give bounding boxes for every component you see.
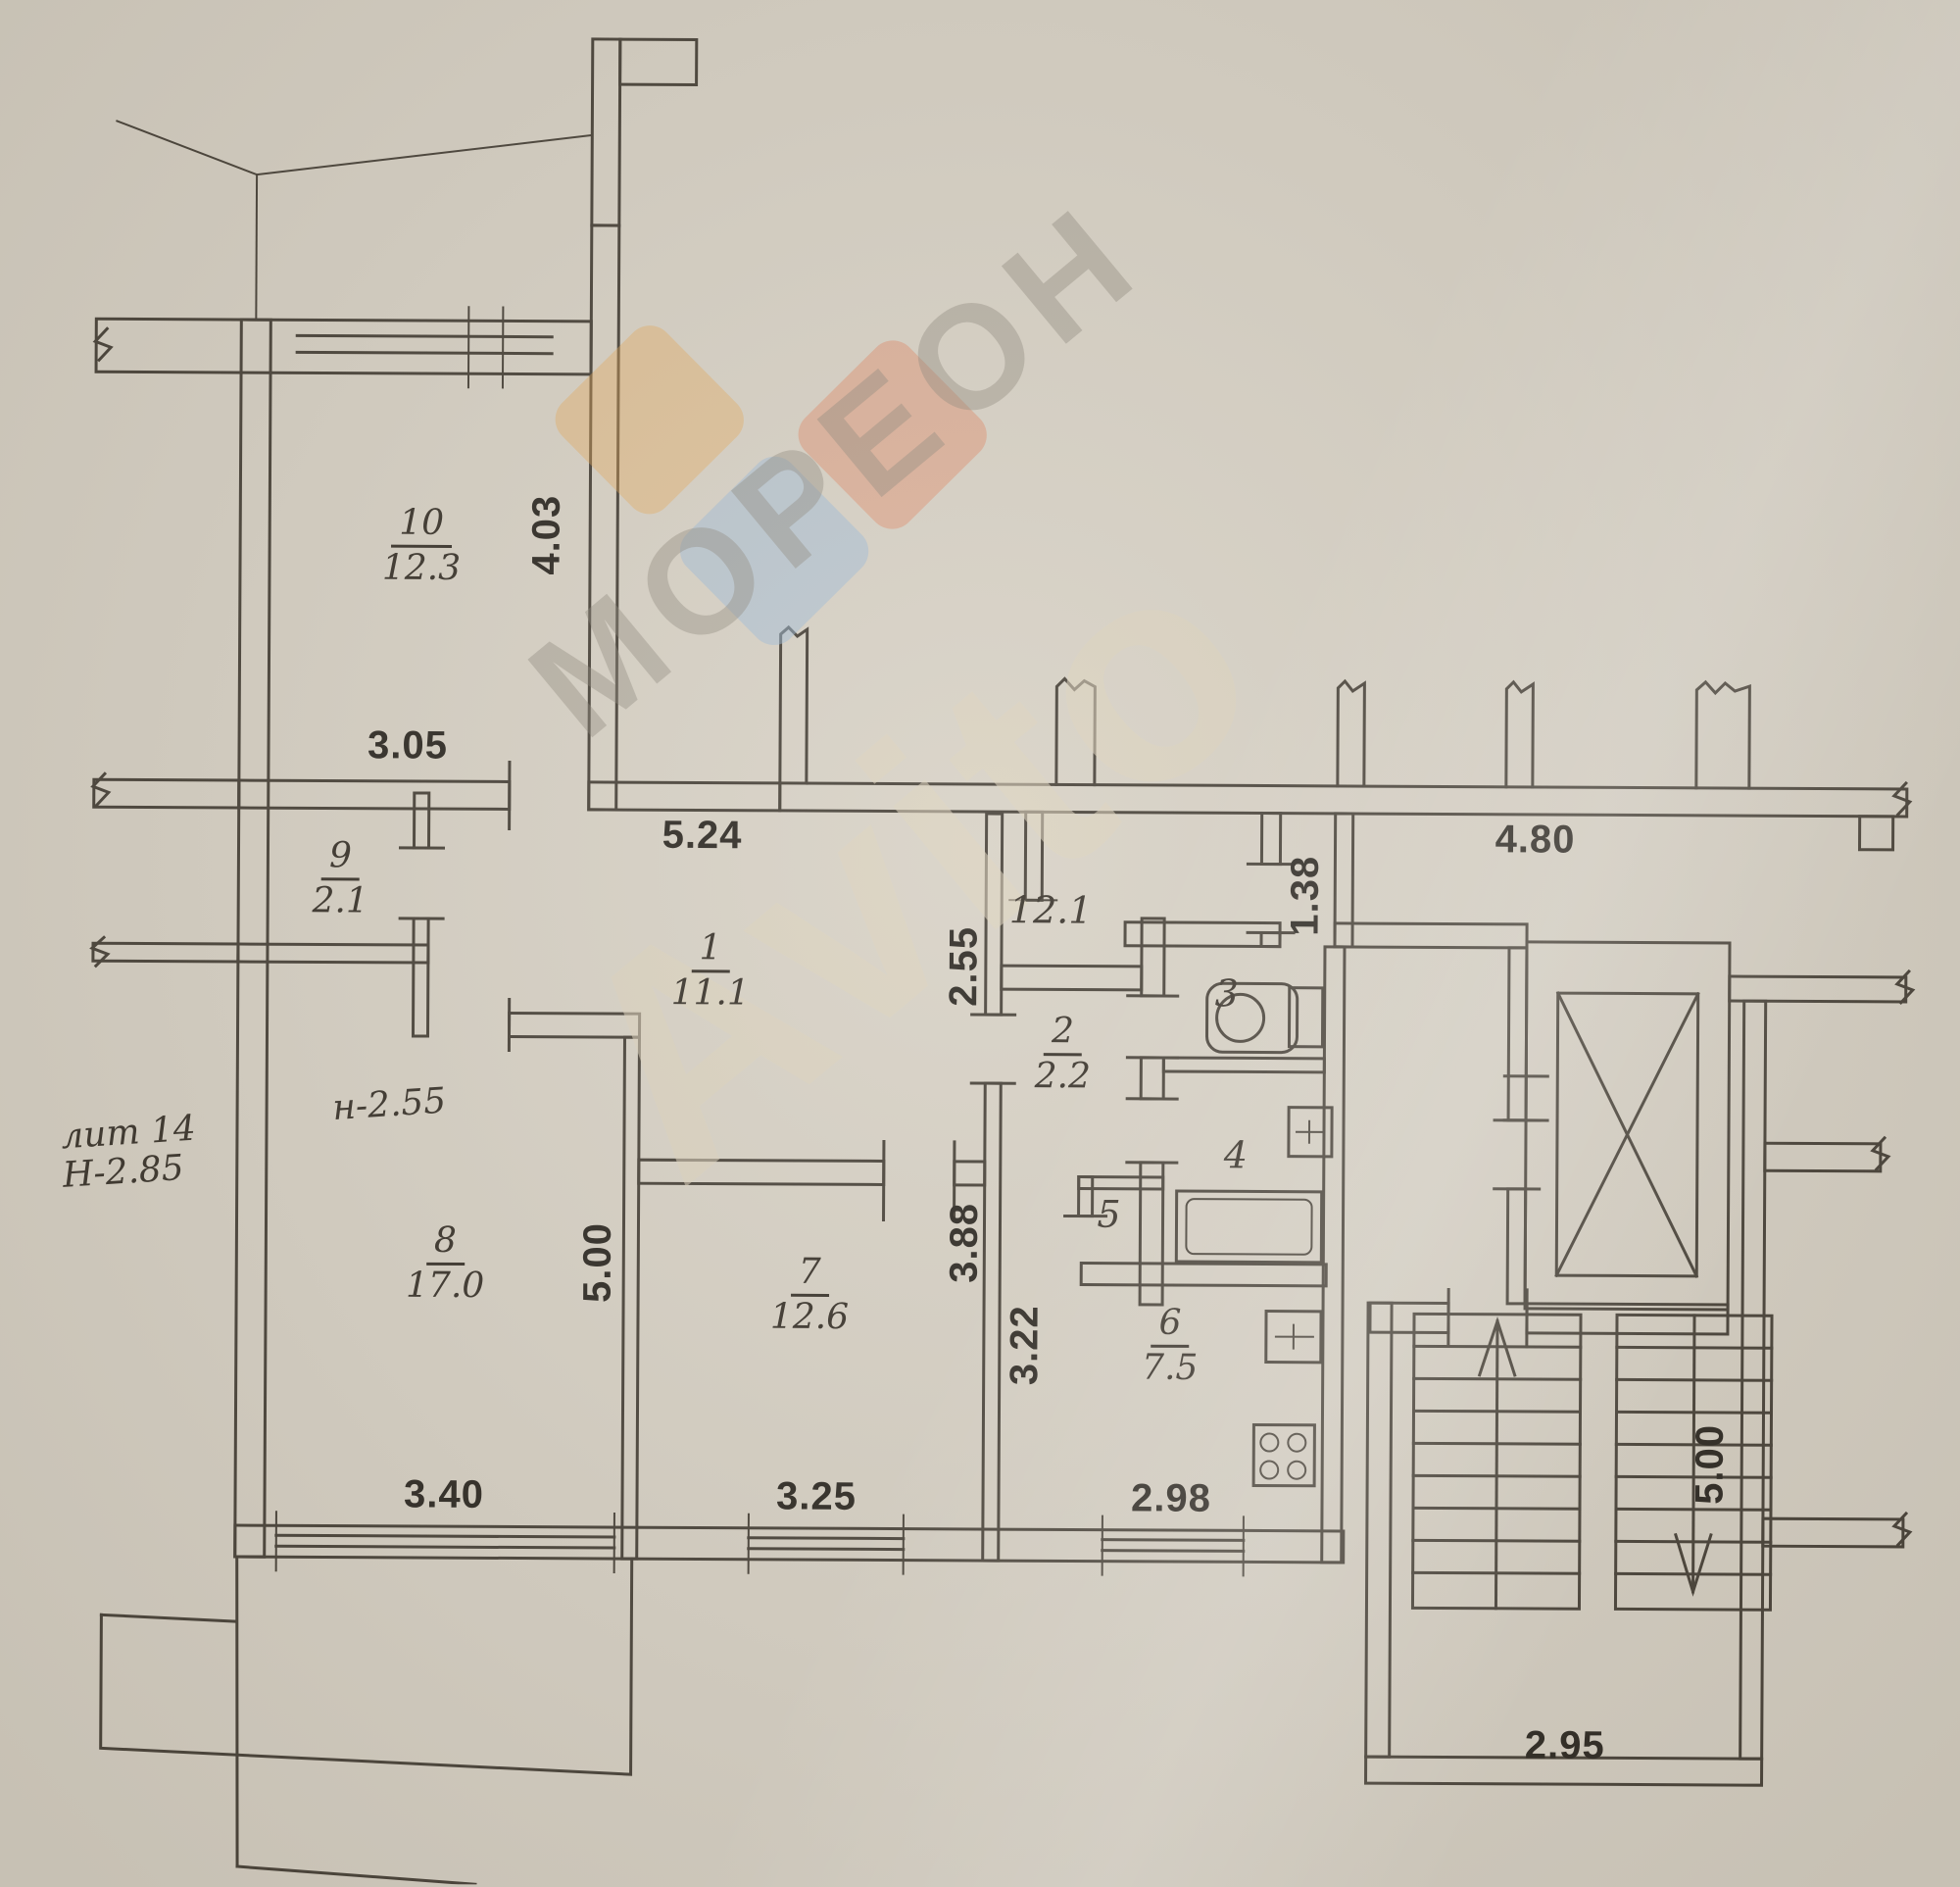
plan-line [1261, 933, 1280, 947]
room-label-4: 4 [1224, 1133, 1248, 1176]
window-hatch [1102, 1540, 1244, 1541]
plan-line [1335, 814, 1353, 947]
balcony-bottom-outline [100, 1556, 632, 1885]
plan-line [955, 1162, 985, 1185]
note-ceiling-height: н-2.55 [331, 1081, 447, 1128]
plan-line [1186, 1199, 1311, 1255]
window-band-bottom [235, 1512, 1344, 1576]
plan-sheet: МОРЕОН Avito 10 12.3 9 2.1 1 11.1 8 17.0… [0, 0, 1960, 1887]
elevator-shaft [1525, 942, 1730, 1310]
plan-line [1140, 1163, 1163, 1305]
plan-line [1730, 976, 1906, 1002]
window-hatch [276, 1535, 614, 1537]
window-band-top [96, 305, 591, 388]
room-number: 2 [1044, 1014, 1082, 1056]
plan-line [1507, 1189, 1526, 1304]
plan-line [415, 793, 429, 848]
dimension-kitchen-width: 2.98 [1131, 1476, 1211, 1520]
plan-line [509, 1013, 639, 1037]
plan-line [1860, 817, 1893, 850]
room-number: 6 [1151, 1306, 1189, 1348]
room-number: 9 [321, 838, 360, 880]
plan-line [1142, 919, 1164, 996]
plan-line [1288, 1434, 1305, 1452]
plan-line [93, 943, 238, 962]
plan-line [1260, 1434, 1278, 1452]
room-area: 2.2 [1035, 1056, 1091, 1095]
room-label-3: 3 [1215, 971, 1239, 1015]
plan-line [1289, 988, 1322, 1047]
dimension-room10-height: 4.03 [524, 495, 568, 575]
dimension-room10-width: 3.05 [367, 723, 448, 768]
plan-line [1260, 1462, 1278, 1479]
plan-line [592, 39, 620, 225]
room-label-hall: 12.1 [1009, 888, 1093, 931]
room-label-2: 2 2.2 [1035, 1014, 1092, 1095]
plan-line [1765, 1143, 1881, 1171]
plan-line [235, 320, 271, 1557]
plan-line [1141, 1058, 1163, 1099]
kitchen-sink-icon [1266, 1312, 1321, 1363]
plan-line [1163, 1058, 1324, 1072]
plan-line [780, 627, 808, 783]
window-hatch [276, 1546, 614, 1548]
plan-line [1322, 947, 1345, 1563]
plan-line [1763, 1518, 1903, 1547]
dimension-corridor-width: 5.24 [662, 814, 743, 858]
plan-line [235, 1557, 239, 1866]
room-label-1: 1 11.1 [671, 930, 751, 1012]
plan-line [1081, 1264, 1326, 1286]
room-number: 1 [691, 930, 729, 972]
plan-line [1056, 678, 1096, 784]
window-hatch [1102, 1551, 1244, 1552]
plan-line [1370, 1303, 1448, 1332]
plan-line [983, 1083, 1002, 1561]
room-number: 10 [391, 506, 452, 548]
window-hatch [749, 1549, 904, 1550]
plan-line [413, 919, 428, 1036]
plan-line [622, 1037, 640, 1559]
plan-line [256, 174, 257, 320]
scanned-floor-plan: МОРЕОН Avito 10 12.3 9 2.1 1 11.1 8 17.0… [0, 0, 1960, 1887]
dimension-room7-height: 3.88 [943, 1203, 987, 1283]
window-hatch [297, 352, 552, 353]
balcony-top-outline [116, 121, 592, 322]
room-area: 17.0 [406, 1265, 484, 1304]
plan-line [986, 814, 1003, 1015]
plan-line [101, 1614, 234, 1621]
plan-line [117, 121, 592, 176]
stove-icon [1253, 1424, 1314, 1485]
exterior-walls-top [589, 39, 697, 811]
plan-line [237, 1866, 475, 1884]
plan-line [639, 1160, 884, 1184]
plan-line [589, 225, 619, 810]
window-hatch [297, 335, 552, 336]
plan-line [1002, 966, 1142, 990]
plan-line [1338, 681, 1365, 786]
plan-line [1366, 1303, 1392, 1757]
plan-line [1506, 682, 1534, 787]
room-label-7: 7 12.6 [770, 1255, 850, 1336]
plan-line [1125, 922, 1280, 947]
room-area: 11.1 [671, 972, 750, 1012]
room-label-10: 10 12.3 [382, 506, 462, 587]
dimension-stairs-width: 2.95 [1525, 1723, 1605, 1767]
dimension-corridor-height: 2.55 [942, 926, 986, 1007]
plan-line [239, 780, 510, 809]
dimension-kitchen-height: 3.22 [1003, 1305, 1047, 1385]
room-number: 7 [791, 1255, 829, 1297]
room-label-5: 5 [1097, 1193, 1120, 1236]
dimension-vestibule-length: 1.38 [1284, 856, 1328, 936]
room-label-6: 6 7.5 [1142, 1306, 1199, 1387]
room-area: 2.1 [312, 880, 367, 919]
room-label-9: 9 2.1 [312, 838, 368, 919]
dimension-stairs-height: 5.00 [1689, 1424, 1733, 1505]
plan-line [1079, 1177, 1093, 1217]
dimension-room7-width: 3.25 [776, 1474, 857, 1518]
wall-pillars [780, 627, 1750, 788]
note-building-height: Н-2.85 [62, 1148, 185, 1196]
plan-line [96, 319, 591, 374]
plan-line [101, 1556, 632, 1774]
room-area: 12.6 [770, 1296, 849, 1335]
room-number: 8 [426, 1223, 465, 1266]
plan-line [1696, 682, 1750, 788]
dimension-room8-height: 5.00 [576, 1222, 620, 1303]
dimension-room8-width: 3.40 [404, 1472, 484, 1516]
plan-line [1495, 1321, 1497, 1609]
plan-line [1176, 1191, 1321, 1263]
room-label-8: 8 17.0 [406, 1223, 485, 1305]
plan-line [94, 779, 239, 808]
plan-line [235, 1525, 1344, 1563]
exterior-wall-left [235, 320, 271, 1557]
dimension-hallway-width: 4.80 [1495, 818, 1576, 862]
plan-line [620, 39, 697, 84]
room-area: 7.5 [1142, 1347, 1198, 1386]
plan-line [1508, 948, 1527, 1120]
plan-line [1288, 1462, 1305, 1479]
plan-line [1261, 814, 1280, 865]
plan-line [780, 783, 1907, 817]
plan-line [1025, 812, 1042, 900]
plan-line [1335, 923, 1527, 948]
window-hatch [749, 1538, 904, 1539]
room-area: 12.3 [382, 547, 461, 586]
bathtub-icon [1176, 1191, 1321, 1263]
